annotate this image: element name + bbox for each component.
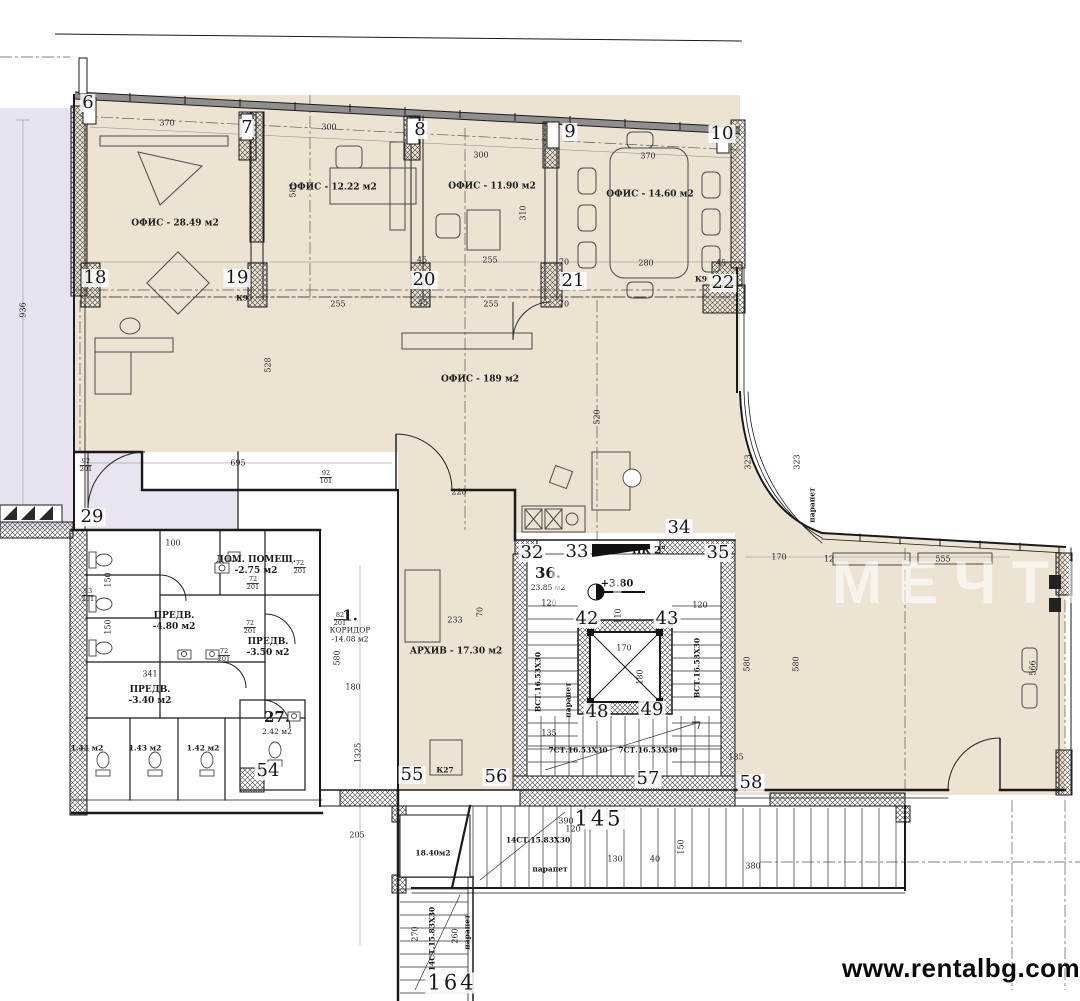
annotation-label: ВСТ.16.53X30 — [534, 652, 543, 712]
annotation-label: 7СТ.16.53X30 — [618, 746, 677, 755]
door-tag: 72201 — [244, 620, 256, 636]
door-tag: 93201 — [82, 588, 94, 604]
grid-marker-48: 48 — [584, 703, 611, 721]
room-label-wc-144: 1.44 м2 — [71, 743, 104, 752]
grid-marker-7: 7 — [239, 119, 254, 137]
room-label-wc-143: 1.43 м2 — [129, 743, 162, 752]
grid-marker-18: 18 — [82, 269, 109, 287]
dimension-label: 260 — [451, 928, 460, 943]
annotation-label: 14СТ.15.83X30 — [428, 907, 437, 971]
dimension-label: 120 — [692, 601, 707, 610]
dimension-label: 150 — [104, 619, 113, 634]
dimension-label: 135 — [541, 729, 556, 738]
grid-marker-164: 164 — [425, 973, 478, 994]
grid-marker-10: 10 — [709, 125, 736, 143]
annotation-label: К27 — [436, 766, 453, 775]
dimension-label: 341 — [142, 670, 157, 679]
grid-marker-57: 57 — [635, 770, 662, 788]
room-label-predv-350: ПРЕДВ.-3.50 м2 — [247, 637, 290, 660]
room-label-office-1460: ОФИС - 14.60 м2 — [606, 189, 693, 200]
annotation-label: +3.80 — [601, 579, 634, 590]
annotation-label: парапет — [463, 914, 472, 949]
annotation-label: К9 — [695, 275, 707, 284]
dimension-label: 220 — [451, 488, 466, 497]
dimension-label: 323 — [744, 454, 753, 469]
dimension-label: 180 — [345, 683, 360, 692]
grid-marker-32: 32 — [519, 544, 546, 562]
door-tag: 72201 — [294, 560, 306, 576]
watermark-url: www.rentalbg.com — [842, 953, 1080, 984]
dimension-label: 70 — [559, 258, 569, 267]
dimension-label: 555 — [935, 555, 950, 564]
room-label-predv-480: ПРЕДВ.-4.80 м2 — [153, 611, 196, 634]
annotation-label: парапет — [532, 865, 567, 874]
floorplan: ОФИС - 28.49 м2ОФИС - 12.22 м2ОФИС - 11.… — [0, 0, 1080, 1001]
room-label-dom-pomesht: ДОМ. ПОМЕЩ.-2.75 м2 — [216, 555, 296, 578]
door-tag: 72201 — [247, 576, 259, 592]
dimension-label: 370 — [159, 119, 174, 128]
grid-marker-58: 58 — [738, 774, 765, 792]
room-label-office-2849: ОФИС - 28.49 м2 — [131, 218, 218, 229]
grid-marker-34: 34 — [666, 519, 693, 537]
annotation-label: парапет — [808, 487, 817, 522]
grid-marker-33: 33 — [564, 543, 591, 561]
annotation-label: ПК 2° — [632, 546, 666, 557]
dimension-label: 120 — [541, 599, 556, 608]
dimension-label: 45 — [417, 256, 427, 265]
dimension-label: 300 — [473, 151, 488, 160]
grid-marker-22: 22 — [710, 274, 737, 292]
dimension-label: 233 — [447, 616, 462, 625]
dimension-label: 270 — [411, 926, 420, 941]
door-tag: 92101 — [320, 470, 332, 486]
grid-marker-42: 42 — [574, 610, 601, 628]
room-label-room-36: 36.23.85 м2 — [531, 564, 565, 592]
dimension-label: 45 — [418, 299, 428, 308]
plan-labels-layer: ОФИС - 28.49 м2ОФИС - 12.22 м2ОФИС - 11.… — [0, 0, 1080, 1001]
grid-marker-54: 54 — [255, 762, 282, 780]
dimension-label: 310 — [519, 205, 528, 220]
annotation-label: парапет — [564, 682, 573, 717]
dimension-label: 170 — [616, 644, 631, 653]
grid-marker-35: 35 — [705, 544, 732, 562]
dimension-label: 110 — [614, 608, 623, 623]
dimension-label: 70 — [559, 300, 569, 309]
grid-marker-29: 29 — [79, 508, 106, 526]
dimension-label: 70 — [476, 607, 485, 617]
dimension-label: 150 — [104, 572, 113, 587]
dimension-label: 12 — [824, 555, 834, 564]
dimension-label: 936 — [19, 302, 28, 317]
dimension-label: 255 — [330, 300, 345, 309]
annotation-label: К9 — [236, 294, 248, 303]
dimension-label: 695 — [230, 459, 245, 468]
dimension-label: 170 — [771, 553, 786, 562]
grid-marker-43: 43 — [654, 610, 681, 628]
dimension-label: 45 — [716, 259, 726, 268]
room-label-predv-340: ПРЕДВ.-3.40 м2 — [129, 685, 172, 708]
dimension-label: 580 — [333, 650, 342, 665]
annotation-label: 7СТ.16.53X30 — [548, 746, 607, 755]
annotation-label: 14СТ.15.83X30 — [506, 836, 570, 845]
dimension-label: 323 — [793, 454, 802, 469]
dimension-label: 180 — [636, 669, 645, 684]
grid-marker-49: 49 — [639, 701, 666, 719]
dimension-label: 300 — [321, 123, 336, 132]
dimension-label: 255 — [482, 256, 497, 265]
grid-marker-9: 9 — [562, 123, 577, 141]
door-tag: 82201 — [334, 612, 346, 628]
dimension-label: 135 — [728, 753, 743, 762]
room-label-office-1222: ОФИС - 12.22 м2 — [289, 182, 376, 193]
annotation-label: ВСТ.16.53X30 — [693, 638, 702, 698]
dimension-label: 520 — [593, 409, 602, 424]
dimension-label: 130 — [607, 855, 622, 864]
room-label-archive: АРХИВ - 17.30 м2 — [410, 646, 503, 657]
dimension-label: 580 — [792, 656, 801, 671]
door-tag: 92201 — [80, 458, 92, 474]
grid-marker-21: 21 — [560, 272, 587, 290]
room-label-room-27: 27.2.42 м2 — [262, 708, 292, 736]
grid-marker-8: 8 — [412, 121, 427, 139]
dimension-label: 100 — [165, 539, 180, 548]
grid-marker-19: 19 — [224, 269, 251, 287]
dimension-label: 150 — [677, 839, 686, 854]
dimension-label: 380 — [745, 862, 760, 871]
grid-marker-20: 20 — [411, 271, 438, 289]
dimension-label: 566 — [1029, 660, 1038, 675]
room-label-wc-142: 1.42 м2 — [187, 743, 220, 752]
dimension-label: 40 — [650, 855, 660, 864]
grid-marker-55: 55 — [399, 766, 426, 784]
dimension-label: 205 — [349, 831, 364, 840]
room-label-office-1190: ОФИС - 11.90 м2 — [448, 181, 535, 192]
dimension-label: 255 — [483, 300, 498, 309]
dimension-label: 580 — [743, 656, 752, 671]
dimension-label: 370 — [640, 152, 655, 161]
dimension-label: 528 — [264, 357, 273, 372]
room-label-stair-room-1840: 18.40м2 — [415, 848, 450, 857]
room-label-office-189: ОФИС - 189 м2 — [441, 374, 519, 385]
grid-marker-6: 6 — [80, 94, 95, 112]
dimension-label: 1325 — [354, 743, 363, 763]
grid-marker-56: 56 — [483, 768, 510, 786]
dimension-label: 280 — [638, 259, 653, 268]
dimension-label: 120 — [565, 825, 580, 834]
dimension-label: 581 — [289, 182, 298, 197]
door-tag: 72201 — [218, 648, 230, 664]
